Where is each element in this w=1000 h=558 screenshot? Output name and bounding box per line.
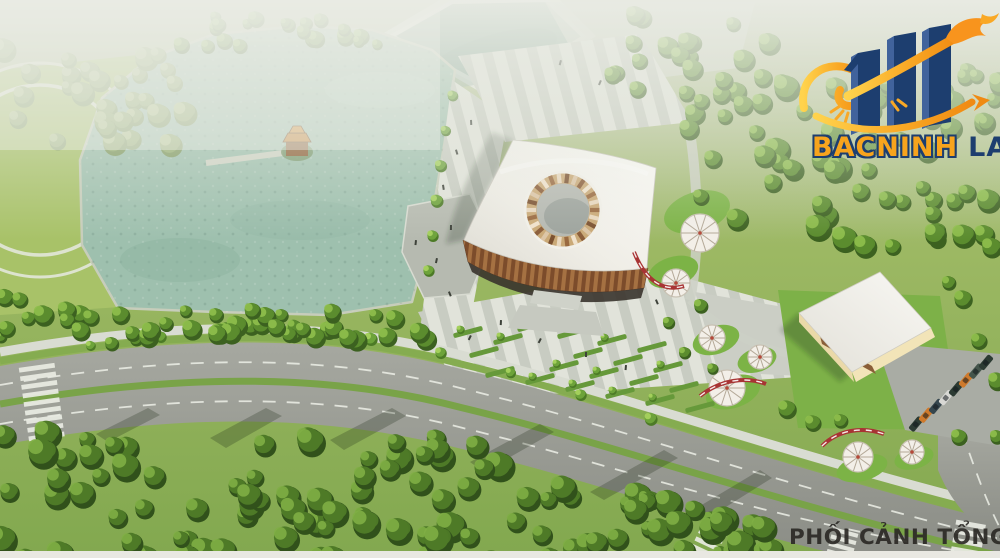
watermark-caption: PHỐI CẢNH TỔNG THỂ (789, 525, 1000, 550)
site-rendering (0, 0, 1000, 558)
bottom-frame-strip (0, 551, 1000, 558)
rendering-canvas: BACNINHLAND PHỐI CẢNH TỔNG THỂ (0, 0, 1000, 558)
